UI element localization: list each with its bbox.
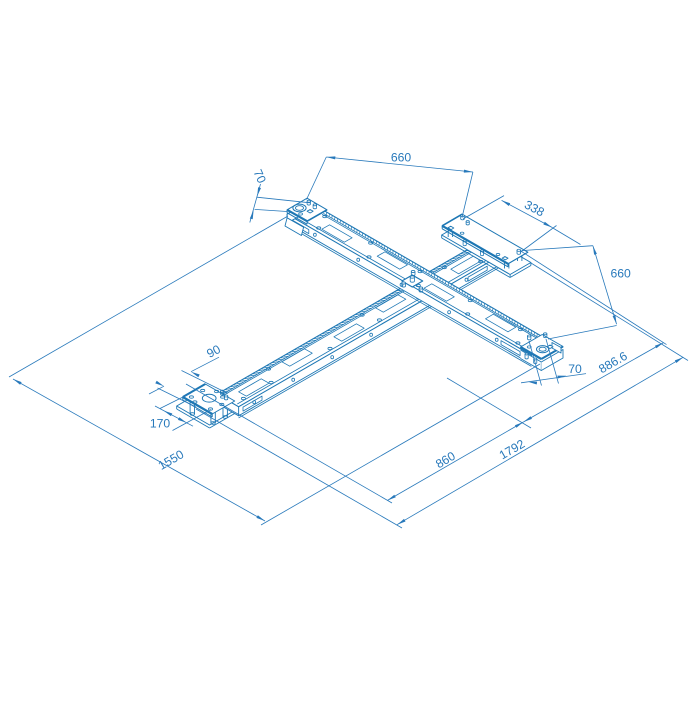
svg-text:170: 170 bbox=[150, 417, 171, 431]
svg-text:70: 70 bbox=[251, 167, 269, 185]
svg-text:70: 70 bbox=[568, 362, 582, 376]
svg-text:338: 338 bbox=[522, 198, 547, 220]
svg-text:1792: 1792 bbox=[497, 437, 528, 463]
svg-text:660: 660 bbox=[391, 151, 412, 165]
svg-text:886.6: 886.6 bbox=[596, 349, 630, 376]
svg-text:860: 860 bbox=[433, 449, 458, 471]
svg-text:1550: 1550 bbox=[156, 447, 187, 473]
svg-text:90: 90 bbox=[204, 342, 223, 361]
svg-text:660: 660 bbox=[611, 267, 632, 281]
